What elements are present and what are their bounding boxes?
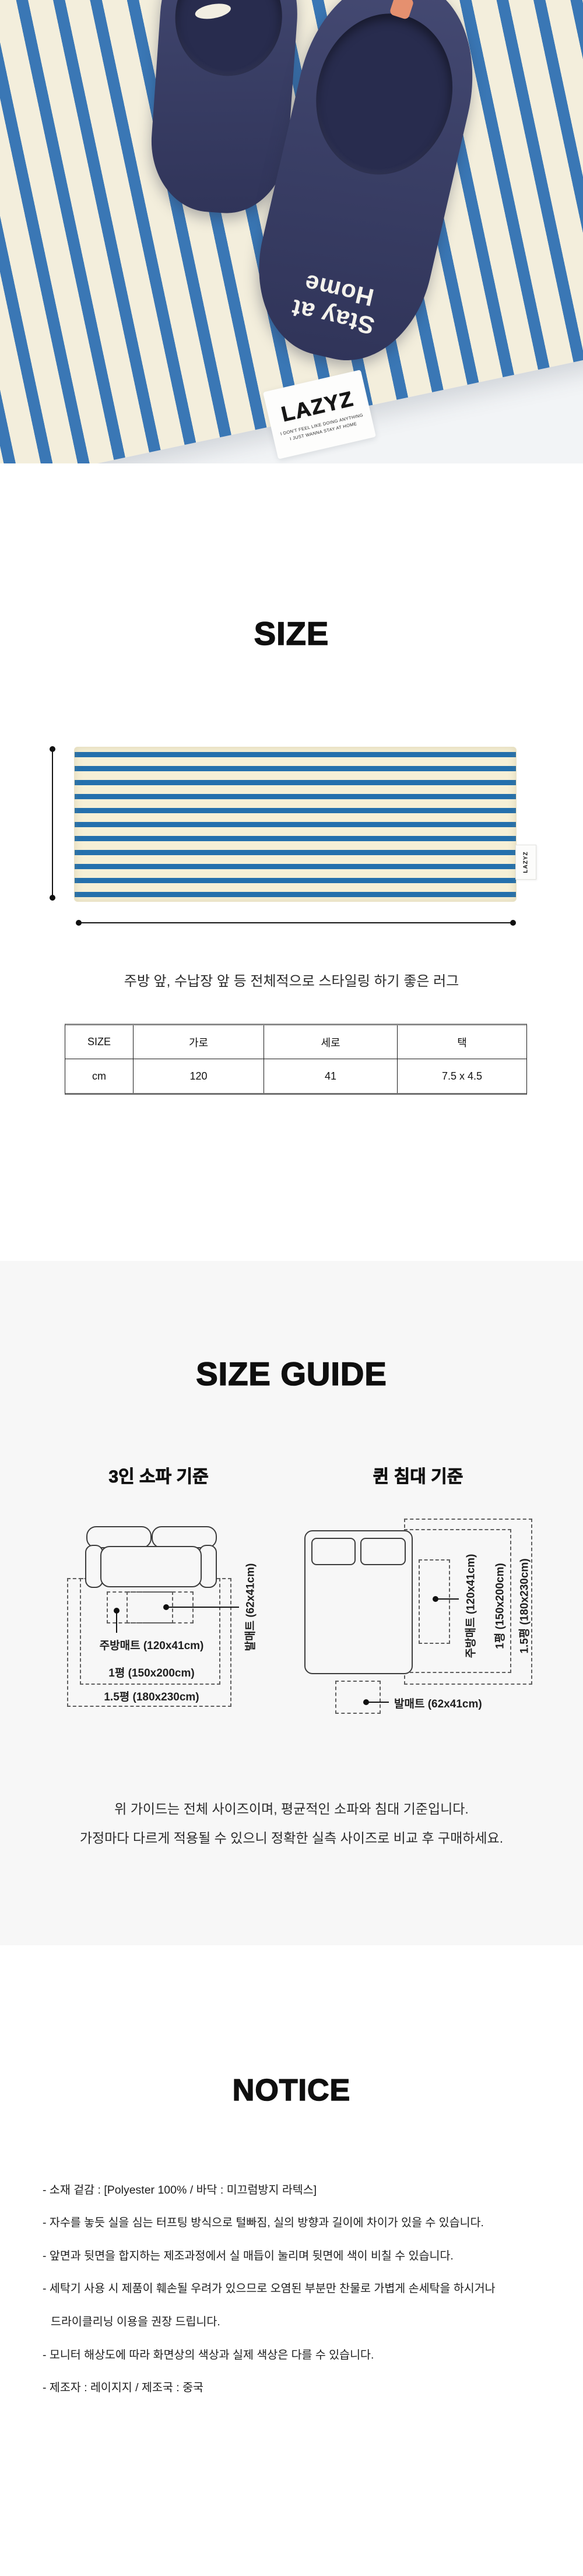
rug-side-tag-label: LAZYZ [523,851,529,873]
product-detail-page: Stay at Home LAZYZ I DON'T FEEL LIKE DOI… [0,0,583,2576]
bed-pillow-right [360,1538,406,1565]
callout-line [116,1611,117,1633]
size-guide-heading: SIZE GUIDE [0,1355,583,1393]
height-dimension-line [52,749,53,898]
size-heading: SIZE [0,614,583,652]
slipper-opening [301,0,468,188]
sofa-1pyeong-label: 1평 (150x200cm) [70,1664,233,1680]
guide-note-line2: 가정마다 다르게 적용될 수 있으니 정확한 실측 사이즈로 비교 후 구매하세… [0,1827,583,1847]
table-header-tag: 택 [398,1025,526,1059]
slipper-opening [171,0,286,79]
table-cell-unit: cm [65,1059,134,1093]
rug-side-tag: LAZYZ [515,845,536,880]
notice-item: - 세탁기 사용 시 제품이 훼손될 우려가 있으므로 오염된 부분만 찬물로 … [43,2280,496,2297]
table-cell-width: 120 [134,1059,264,1093]
sofa-kitchen-mat-label: 주방매트 (120x41cm) [70,1637,233,1653]
width-dimension-line [79,922,513,923]
product-photo: Stay at Home LAZYZ I DON'T FEEL LIKE DOI… [0,0,583,463]
sofa-seat [100,1546,202,1587]
sofa-guide-title: 3인 소파 기준 [65,1462,252,1488]
table-cell-tag: 7.5 x 4.5 [398,1059,526,1093]
table-header-width: 가로 [134,1025,264,1059]
table-header-height: 세로 [264,1025,398,1059]
bed-kitchen-mat-label: 주방매트 (120x41cm) [462,1554,478,1658]
notice-item: - 모니터 해상도에 따라 화면상의 색상과 실제 색상은 다를 수 있습니다. [43,2347,374,2363]
dimension-dot [50,895,55,901]
bed-foot-mat-62x41 [335,1681,381,1714]
notice-item: - 제조자 : 레이지지 / 제조국 : 중국 [43,2380,203,2396]
notice-heading: NOTICE [0,2073,583,2108]
notice-item-continued: 드라이클리닝 이용을 권장 드립니다. [51,2314,220,2330]
callout-line [367,1702,389,1703]
table-cell-height: 41 [264,1059,398,1093]
sofa-foot-mat-label: 발매트 (62x41cm) [242,1563,258,1651]
guide-note-line1: 위 가이드는 전체 사이즈이며, 평균적인 소파와 침대 기준입니다. [0,1798,583,1818]
notice-item: - 자수를 놓듯 실을 심는 터프팅 방식으로 털빠짐, 실의 방향과 길이에 … [43,2215,484,2231]
table-header-size: SIZE [65,1025,134,1059]
bed-guide-title: 퀸 침대 기준 [325,1462,511,1488]
sofa-1.5pyeong-label: 1.5평 (180x230cm) [70,1688,233,1704]
notice-item: - 소재 겉감 : [Polyester 100% / 바닥 : 미끄럼방지 라… [43,2182,317,2198]
callout-line [167,1607,239,1608]
rug-size-diagram [74,747,517,902]
bed-pillow-left [311,1538,356,1565]
notice-item: - 앞면과 뒷면을 합지하는 제조과정에서 실 매듭이 눌리며 뒷면에 색이 비… [43,2248,454,2264]
dimension-dot [510,920,516,926]
size-spec-table: SIZE 가로 세로 택 cm 120 41 7.5 x 4.5 [65,1024,527,1095]
callout-line [437,1598,459,1600]
bed-1pyeong-label: 1평 (150x200cm) [491,1563,507,1649]
bed-foot-mat-label: 발매트 (62x41cm) [394,1695,482,1711]
bed-1.5pyeong-label: 1.5평 (180x230cm) [516,1558,532,1653]
slipper-footbed-highlight [194,1,233,22]
size-caption: 주방 앞, 수납장 앞 등 전체적으로 스타일링 하기 좋은 러그 [0,969,583,990]
